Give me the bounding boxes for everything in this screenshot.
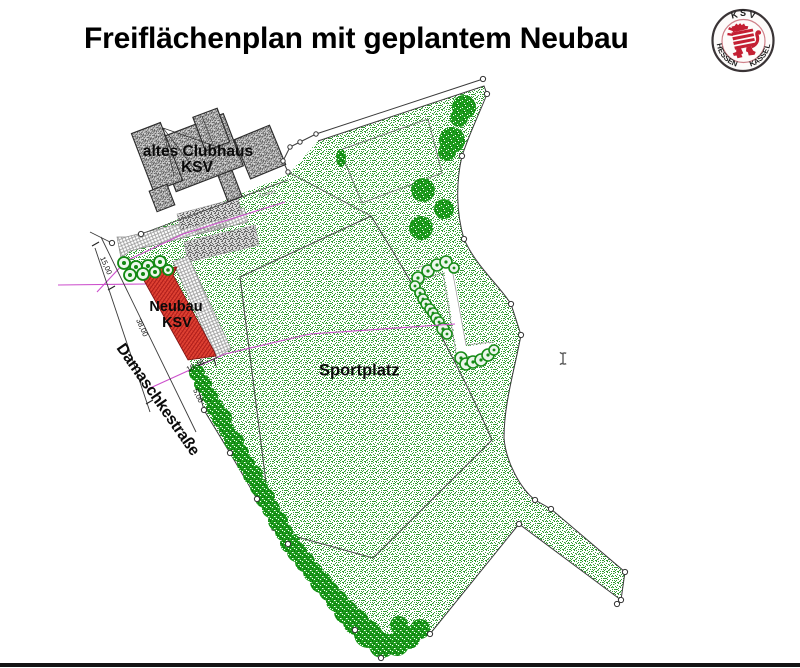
svg-text:S: S xyxy=(740,8,746,18)
svg-text:KSV: KSV xyxy=(162,315,192,331)
svg-text:KSV: KSV xyxy=(181,159,214,176)
svg-text:Freiflächenplan mit geplantem: Freiflächenplan mit geplantem Neubau xyxy=(84,22,629,55)
svg-text:Sportplatz: Sportplatz xyxy=(319,362,400,380)
svg-text:Neubau: Neubau xyxy=(149,299,202,315)
svg-text:38,00: 38,00 xyxy=(134,317,150,338)
svg-text:altes Clubhaus: altes Clubhaus xyxy=(143,143,253,160)
